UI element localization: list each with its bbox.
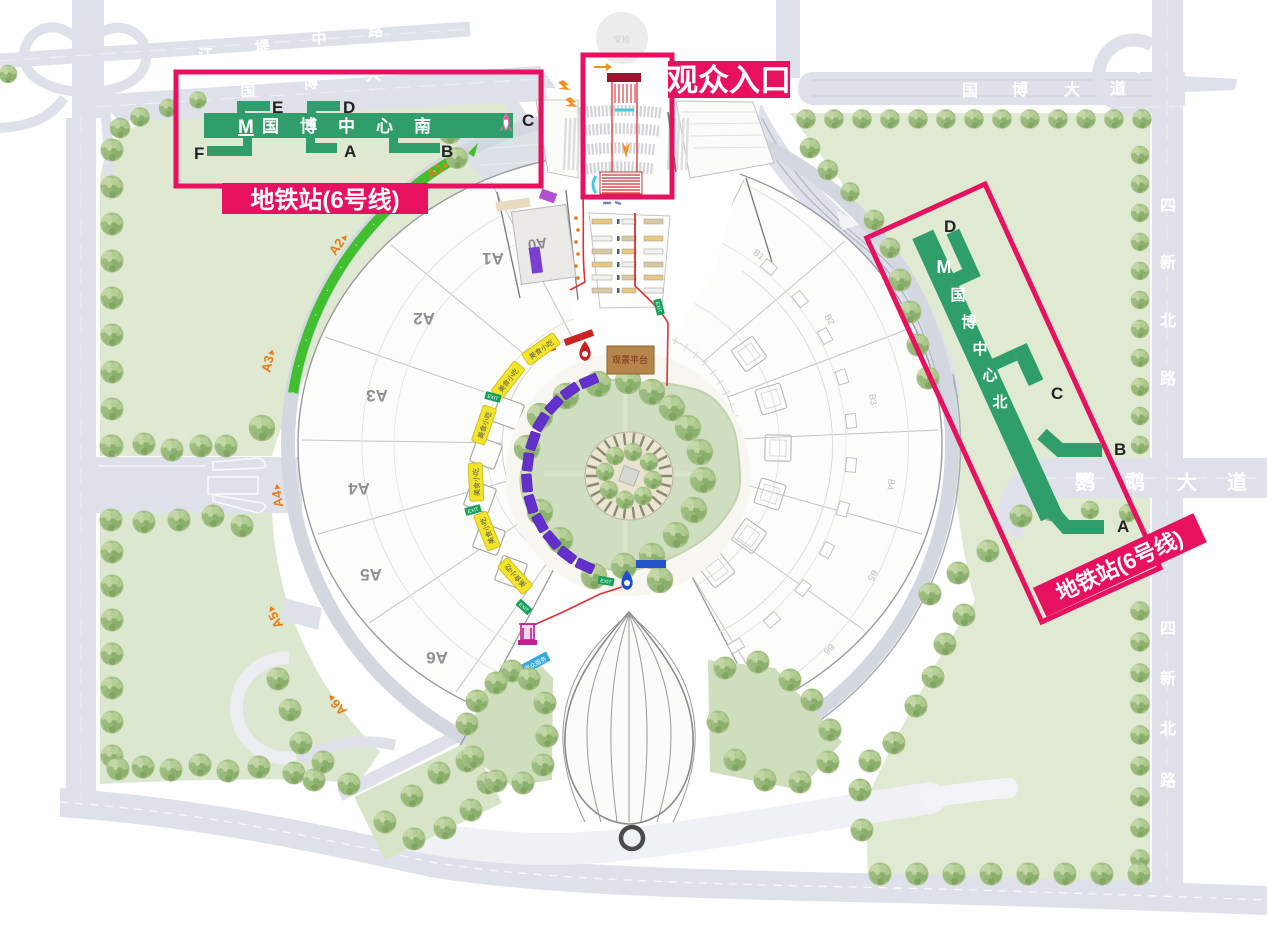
svg-text:新: 新 (1160, 669, 1176, 688)
svg-text:道: 道 (1110, 79, 1126, 98)
svg-text:堤: 堤 (254, 38, 271, 56)
svg-text:中: 中 (972, 340, 987, 358)
svg-text:地铁站(6号线): 地铁站(6号线) (250, 187, 399, 214)
svg-text:观众入口: 观众入口 (667, 63, 791, 98)
svg-text:心: 心 (982, 367, 997, 384)
svg-text:M: M (937, 257, 952, 277)
svg-text:新: 新 (1160, 253, 1176, 272)
svg-text:北: 北 (1160, 720, 1176, 738)
svg-text:C: C (1051, 384, 1063, 403)
svg-text:M: M (238, 117, 254, 138)
svg-text:D: D (944, 217, 956, 236)
svg-text:A1: A1 (482, 249, 504, 268)
svg-text:A5: A5 (360, 565, 382, 584)
svg-text:鹉: 鹉 (1125, 471, 1145, 494)
svg-text:博: 博 (302, 73, 318, 92)
svg-text:A3: A3 (366, 386, 388, 405)
svg-text:F: F (194, 144, 204, 163)
svg-text:A6: A6 (426, 648, 448, 667)
svg-text:大: 大 (1064, 80, 1080, 99)
svg-text:路: 路 (1160, 369, 1177, 388)
svg-text:博: 博 (1012, 80, 1028, 99)
svg-text:国: 国 (962, 82, 978, 100)
svg-text:鹦: 鹦 (1074, 470, 1095, 494)
svg-text:国: 国 (240, 82, 256, 100)
svg-text:A: A (1117, 517, 1129, 536)
svg-text:中: 中 (311, 30, 327, 49)
svg-text:路: 路 (1160, 771, 1177, 790)
svg-text:国: 国 (950, 287, 965, 304)
svg-text:A4: A4 (348, 479, 370, 498)
svg-text:B: B (1114, 440, 1126, 459)
svg-text:A2: A2 (413, 309, 435, 328)
svg-text:江: 江 (198, 45, 214, 64)
svg-text:E: E (272, 98, 283, 117)
svg-text:北: 北 (992, 394, 1007, 411)
svg-text:D: D (343, 98, 355, 117)
svg-text:国博中心南: 国博中心南 (262, 116, 452, 136)
svg-text:B3: B3 (867, 393, 879, 405)
svg-text:四: 四 (1160, 621, 1176, 638)
svg-text:大: 大 (1177, 471, 1197, 494)
svg-text:观景平台: 观景平台 (612, 354, 648, 365)
svg-text:C: C (522, 111, 534, 130)
svg-text:北: 北 (1160, 312, 1176, 330)
svg-text:博: 博 (961, 313, 976, 331)
svg-text:B: B (441, 142, 453, 161)
svg-text:道: 道 (1227, 470, 1247, 494)
svg-text:A4: A4 (269, 489, 287, 509)
svg-text:安检: 安检 (614, 34, 630, 44)
svg-text:B4: B4 (885, 478, 897, 490)
svg-text:A: A (344, 142, 356, 161)
svg-text:大: 大 (365, 65, 381, 84)
svg-text:路: 路 (368, 22, 385, 41)
svg-text:四: 四 (1160, 198, 1176, 215)
